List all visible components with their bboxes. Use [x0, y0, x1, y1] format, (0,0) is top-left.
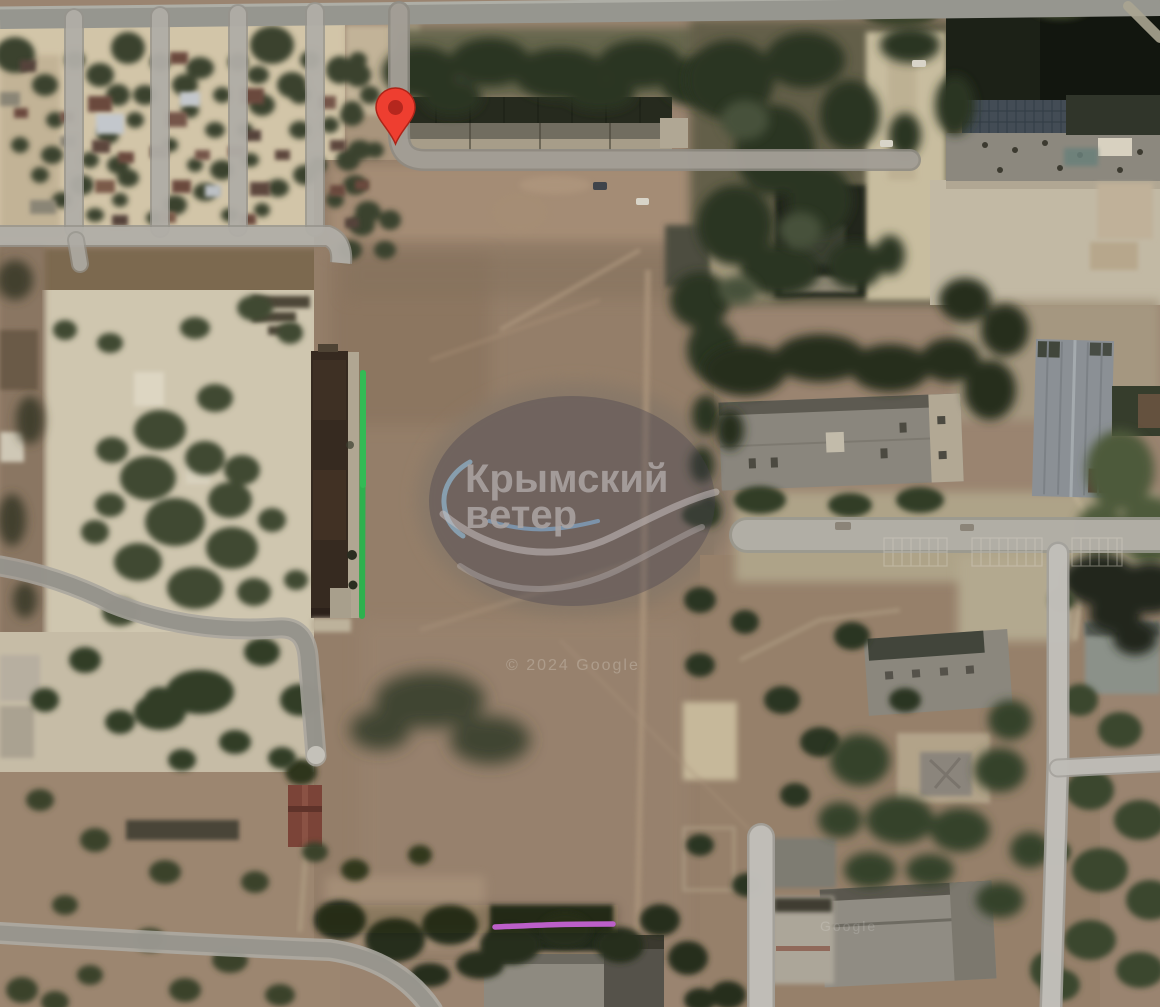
- svg-text:Google: Google: [820, 918, 877, 934]
- svg-text:© 2024 Google: © 2024 Google: [506, 657, 640, 674]
- svg-text:ветер: ветер: [465, 493, 577, 537]
